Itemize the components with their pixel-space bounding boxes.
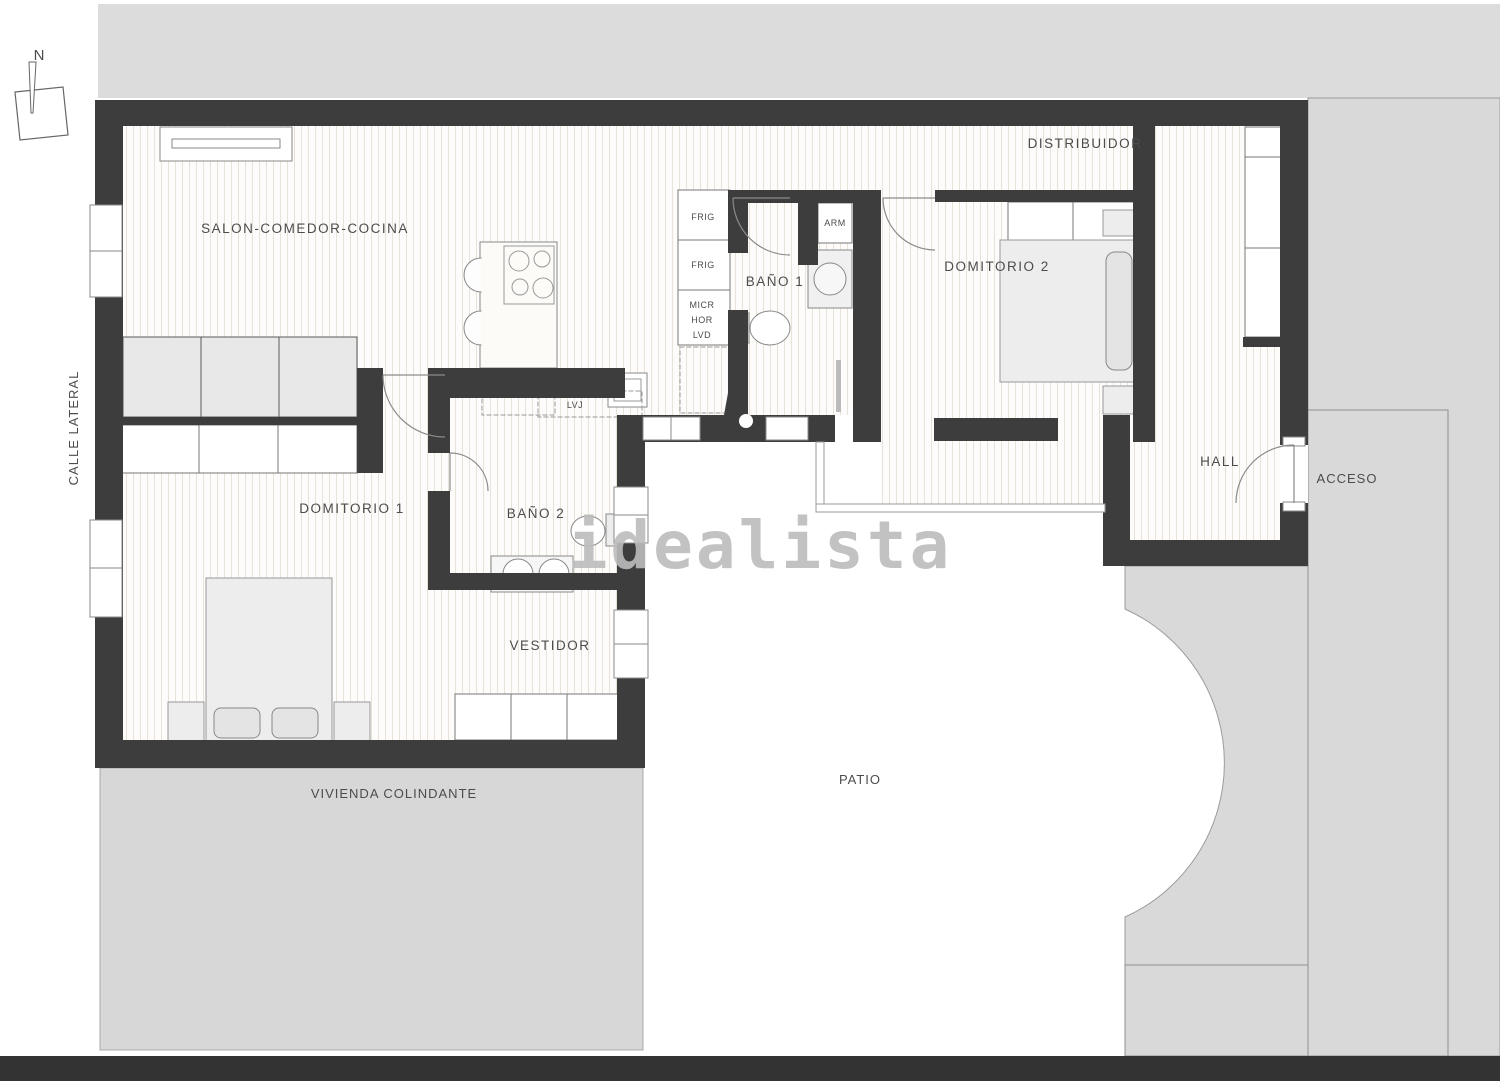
nightstand (1103, 386, 1135, 414)
label-lvd: LVD (693, 330, 711, 340)
vestidor-closet (455, 694, 622, 740)
label-lvj: LVJ (567, 400, 583, 410)
pillow (214, 708, 260, 738)
label-acceso: ACCESO (1317, 471, 1378, 486)
pillow (1106, 252, 1132, 370)
window-salon-south-a (643, 417, 700, 440)
window-dorm1-west (90, 520, 122, 617)
wall-salon-south-mid (700, 415, 733, 442)
wall-dorm2-north (935, 190, 1137, 202)
dorm1-closet (120, 425, 357, 473)
glass-panel-vertical (816, 442, 824, 508)
compass: N (15, 47, 68, 140)
pillow (272, 708, 318, 738)
label-distribuidor: DISTRIBUIDOR (1028, 136, 1143, 151)
window-salon-west (90, 205, 122, 297)
floor-plan-svg: SALON-COMEDOR-COCINA DISTRIBUIDOR BAÑO 1… (0, 0, 1500, 1081)
label-frig-2: FRIG (691, 260, 715, 270)
ac-unit (160, 127, 292, 161)
label-bano1: BAÑO 1 (746, 274, 805, 289)
window-vestidor-east (614, 610, 648, 678)
wall-east-west-wing (617, 415, 645, 768)
label-vestidor: VESTIDOR (509, 638, 590, 653)
wall-west (95, 100, 123, 768)
floor-plan-page: SALON-COMEDOR-COCINA DISTRIBUIDOR BAÑO 1… (0, 0, 1500, 1081)
closet-box (120, 425, 357, 473)
wall-hall-west (1103, 415, 1130, 566)
label-micr: MICR (690, 300, 715, 310)
toilet (750, 311, 790, 345)
shower-screen (836, 360, 841, 412)
wall-dorm1-closet-back (118, 417, 357, 425)
wall-dorm2-headboard (934, 418, 1058, 441)
compass-north-label: N (34, 47, 45, 64)
label-hall: HALL (1200, 454, 1240, 469)
window-salon-south-b (766, 417, 808, 440)
bottom-band (0, 1056, 1500, 1081)
entrance-jamb-bottom (1283, 502, 1305, 511)
label-frig-1: FRIG (691, 212, 715, 222)
label-calle-lateral: CALLE LATERAL (66, 371, 81, 486)
label-arm: ARM (824, 218, 846, 228)
closet-box (455, 694, 622, 740)
label-bano2: BAÑO 2 (507, 506, 566, 521)
wall-south-west-wing (95, 740, 645, 768)
wall-wardrobe-bottom (1243, 337, 1308, 347)
label-hor: HOR (691, 315, 713, 325)
compass-needle-icon (29, 62, 36, 113)
top-street-mass (98, 4, 1500, 98)
sofa (123, 337, 357, 417)
wall-door-post-left (357, 368, 383, 473)
label-dormitorio1: DOMITORIO 1 (299, 501, 405, 516)
label-patio: PATIO (839, 772, 881, 787)
wall-hall-south (1125, 540, 1308, 566)
island-counter (480, 242, 557, 368)
wall-arm-post (798, 203, 818, 265)
acceso-area-outline (1308, 410, 1448, 1056)
wall-bano2-north (443, 368, 625, 398)
wall-dorm2-east (1133, 125, 1155, 442)
sink-bowl (814, 263, 846, 295)
column-round (739, 414, 753, 428)
label-dormitorio2: DOMITORIO 2 (944, 259, 1050, 274)
label-vivienda-colindante: VIVIENDA COLINDANTE (311, 786, 477, 801)
label-salon: SALON-COMEDOR-COCINA (201, 221, 409, 236)
compass-square (15, 87, 68, 140)
nightstand (1103, 210, 1135, 236)
wall-north (95, 100, 1308, 126)
wall-bano1-west-top (728, 203, 748, 253)
idealista-watermark: idealista (568, 507, 953, 584)
adjacent-dwelling-mass (100, 768, 643, 1050)
patio-corner-outline (1125, 965, 1308, 1056)
nightstand (168, 702, 204, 744)
nightstand (334, 702, 370, 744)
wall-bano1-north (728, 190, 855, 203)
wall-east-outer-top (1280, 100, 1308, 445)
sofa-body (123, 337, 357, 417)
wall-bano1-dorm2-divider (853, 190, 881, 442)
wall-bano2-west-top (428, 368, 450, 453)
